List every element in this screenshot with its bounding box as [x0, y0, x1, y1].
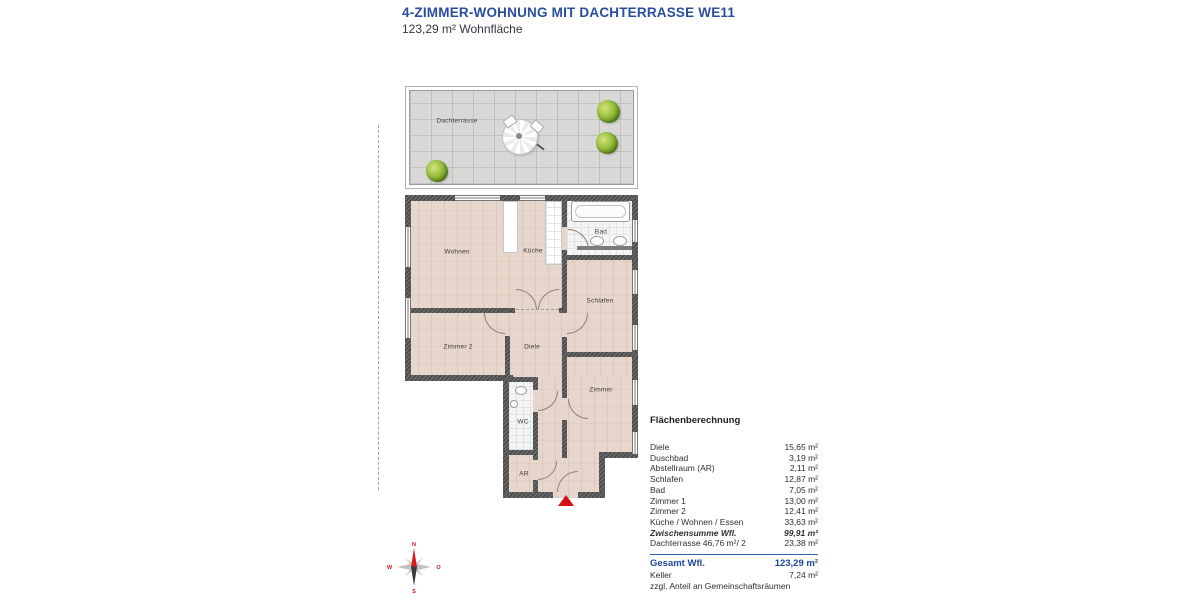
parasol-pole: [516, 133, 522, 139]
row-label: Bad: [650, 485, 665, 496]
wall: [562, 195, 567, 227]
total-label: Gesamt Wfl.: [650, 558, 705, 570]
table-row-keller: Keller7,24 m²: [650, 570, 818, 581]
kitchen-counter: [503, 201, 518, 253]
room-label-bad: Bad: [595, 229, 607, 236]
table-row-total: Gesamt Wfl.123,29 m²: [650, 555, 818, 570]
row-label: Schlafen: [650, 474, 683, 485]
sink: [590, 236, 604, 246]
room-label-diele: Diele: [524, 344, 540, 351]
window: [405, 227, 411, 267]
row-label: Abstellraum (AR): [650, 463, 715, 474]
wall: [503, 492, 553, 498]
table-footnote: zzgl. Anteil an Gemeinschaftsräumen: [650, 581, 818, 592]
table-row: Duschbad3,19 m²: [650, 453, 818, 464]
table-row: Dachterrasse 46,76 m²/ 223,38 m²: [650, 538, 818, 549]
room-label-schlafen: Schlafen: [587, 298, 614, 305]
table-row: Bad7,05 m²: [650, 485, 818, 496]
wall: [505, 308, 510, 313]
table-row-subtotal: Zwischensumme Wfl.99,91 m²: [650, 528, 818, 539]
window: [632, 270, 638, 294]
wall: [503, 377, 538, 382]
window: [632, 432, 638, 454]
compass-o: O: [436, 565, 441, 571]
window: [520, 195, 545, 201]
wall: [405, 195, 411, 381]
window: [405, 298, 411, 338]
row-value: 2,11 m²: [790, 463, 818, 474]
wall: [562, 420, 567, 458]
row-value: 15,65 m²: [784, 442, 818, 453]
wall: [533, 412, 538, 455]
row-value: 7,24 m²: [789, 570, 818, 581]
window: [632, 220, 638, 242]
total-value: 123,29 m²: [775, 558, 818, 570]
wall: [503, 375, 509, 498]
wall: [533, 480, 538, 498]
room-label-ar: AR: [519, 471, 528, 478]
wall: [578, 492, 605, 498]
area-table: Flächenberechnung Diele15,65 m² Duschbad…: [650, 415, 818, 591]
room-label-wc: WC: [517, 419, 528, 426]
compass-needle-north: [411, 548, 417, 568]
compass-needle-south: [411, 567, 417, 587]
row-value: 7,05 m²: [789, 485, 818, 496]
row-label: Diele: [650, 442, 669, 453]
room-label-zimmer2: Zimmer 2: [443, 344, 472, 351]
table-row: Diele15,65 m²: [650, 442, 818, 453]
room-label-dachterrasse: Dachterrasse: [436, 118, 477, 125]
compass-rose-icon: N W O S: [385, 538, 443, 594]
row-value: 23,38 m²: [784, 538, 818, 549]
door-threshold: [516, 309, 559, 310]
row-label: Zimmer 1: [650, 496, 686, 507]
row-value: 12,87 m²: [784, 474, 818, 485]
table-row: Küche / Wohnen / Essen33,63 m²: [650, 517, 818, 528]
table-row: Zimmer 212,41 m²: [650, 506, 818, 517]
sink: [613, 236, 627, 246]
wc-sink: [510, 400, 518, 408]
row-label: Zwischensumme Wfl.: [650, 528, 736, 539]
wall: [533, 455, 538, 460]
row-label: Duschbad: [650, 453, 688, 464]
table-row: Schlafen12,87 m²: [650, 474, 818, 485]
entrance-marker-icon: [558, 495, 574, 506]
table-row: Zimmer 113,00 m²: [650, 496, 818, 507]
floorplan-page: 4-ZIMMER-WOHNUNG MIT DACHTERRASSE WE11 1…: [0, 0, 1200, 600]
wall: [505, 336, 510, 381]
tree-icon: [597, 100, 620, 123]
window: [455, 195, 500, 201]
wall: [405, 375, 513, 381]
window: [632, 380, 638, 405]
row-value: 13,00 m²: [784, 496, 818, 507]
row-label: Keller: [650, 570, 672, 581]
wall: [562, 255, 638, 260]
compass-w: W: [387, 565, 393, 571]
wall: [562, 337, 567, 398]
table-row: Abstellraum (AR)2,11 m²: [650, 463, 818, 474]
kitchen-counter: [545, 201, 562, 265]
row-value: 12,41 m²: [784, 506, 818, 517]
page-subtitle: 123,29 m² Wohnfläche: [402, 22, 523, 36]
row-label: Zimmer 2: [650, 506, 686, 517]
room-label-wohnen: Wohnen: [444, 249, 469, 256]
area-table-heading: Flächenberechnung: [650, 415, 818, 426]
row-value: 33,63 m²: [784, 517, 818, 528]
row-label: Dachterrasse 46,76 m²/ 2: [650, 538, 746, 549]
row-value: 3,19 m²: [789, 453, 818, 464]
window: [632, 325, 638, 350]
room-label-zimmer: Zimmer: [589, 387, 612, 394]
compass-s: S: [412, 589, 416, 594]
page-title: 4-ZIMMER-WOHNUNG MIT DACHTERRASSE WE11: [402, 5, 735, 20]
wall: [562, 352, 638, 357]
compass-n: N: [412, 542, 416, 548]
row-value: 99,91 m²: [784, 528, 818, 539]
toilet: [515, 386, 527, 395]
bathtub: [571, 201, 630, 222]
dimension-line: [378, 125, 379, 490]
row-label: Küche / Wohnen / Essen: [650, 517, 743, 528]
tree-icon: [426, 160, 448, 182]
room-label-kueche: Küche: [523, 248, 542, 255]
tree-icon: [596, 132, 618, 154]
